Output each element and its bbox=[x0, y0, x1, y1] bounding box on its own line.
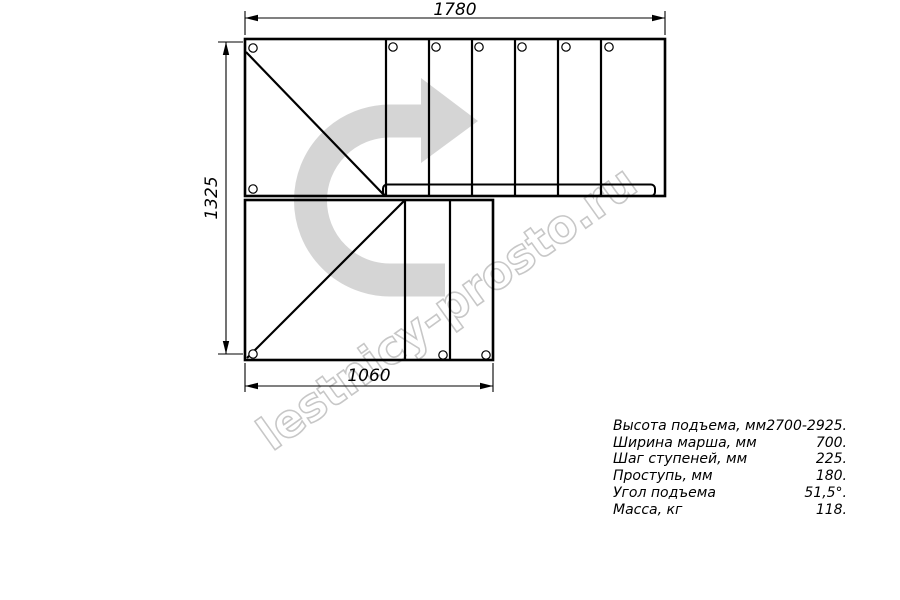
spec-row: Шаг ступеней, мм 225. bbox=[613, 451, 847, 468]
spec-label: Шаг ступеней, мм bbox=[613, 451, 747, 468]
mount-hole bbox=[518, 43, 526, 51]
mount-hole bbox=[605, 43, 613, 51]
mount-hole bbox=[562, 43, 570, 51]
dimension-left-value: 1325 bbox=[202, 176, 222, 219]
mount-hole bbox=[439, 351, 447, 359]
mount-hole bbox=[475, 43, 483, 51]
spec-value: 225. bbox=[816, 451, 847, 468]
spec-row: Угол подъема 51,5°. bbox=[613, 485, 847, 502]
mount-hole bbox=[249, 185, 257, 193]
mount-hole bbox=[482, 351, 490, 359]
mount-hole bbox=[249, 44, 257, 52]
dim-arrow bbox=[223, 42, 229, 55]
dimension-top-value: 1780 bbox=[433, 0, 476, 20]
dimension-left: 1325 bbox=[202, 42, 243, 354]
dim-arrow bbox=[480, 383, 493, 389]
direction-arrow-icon bbox=[310, 78, 478, 280]
spec-label: Угол подъема bbox=[613, 485, 716, 502]
spec-value: 180. bbox=[816, 468, 847, 485]
mount-hole bbox=[249, 350, 257, 358]
spec-label: Ширина марша, мм bbox=[613, 435, 757, 452]
spec-value: 51,5°. bbox=[804, 485, 847, 502]
spec-label: Проступь, мм bbox=[613, 468, 713, 485]
stair-drawing-page: lestnicy-prosto.ru bbox=[0, 0, 900, 600]
spec-row: Высота подъема, мм 2700-2925. bbox=[613, 418, 847, 435]
spec-label: Масса, кг bbox=[613, 502, 682, 519]
mount-hole bbox=[389, 43, 397, 51]
dim-arrow bbox=[245, 383, 258, 389]
mount-hole bbox=[432, 43, 440, 51]
spec-label: Высота подъема, мм bbox=[613, 418, 766, 435]
spec-table: Высота подъема, мм 2700-2925. Ширина мар… bbox=[613, 418, 847, 518]
dimension-bottom-value: 1060 bbox=[347, 366, 390, 386]
spec-row: Проступь, мм 180. bbox=[613, 468, 847, 485]
dimension-top: 1780 bbox=[245, 0, 665, 35]
spec-value: 2700-2925. bbox=[766, 418, 847, 435]
spec-row: Ширина марша, мм 700. bbox=[613, 435, 847, 452]
spec-value: 700. bbox=[816, 435, 847, 452]
dim-arrow bbox=[223, 341, 229, 354]
spec-value: 118. bbox=[816, 502, 847, 519]
dim-arrow bbox=[652, 15, 665, 21]
dim-arrow bbox=[245, 15, 258, 21]
spec-row: Масса, кг 118. bbox=[613, 502, 847, 519]
